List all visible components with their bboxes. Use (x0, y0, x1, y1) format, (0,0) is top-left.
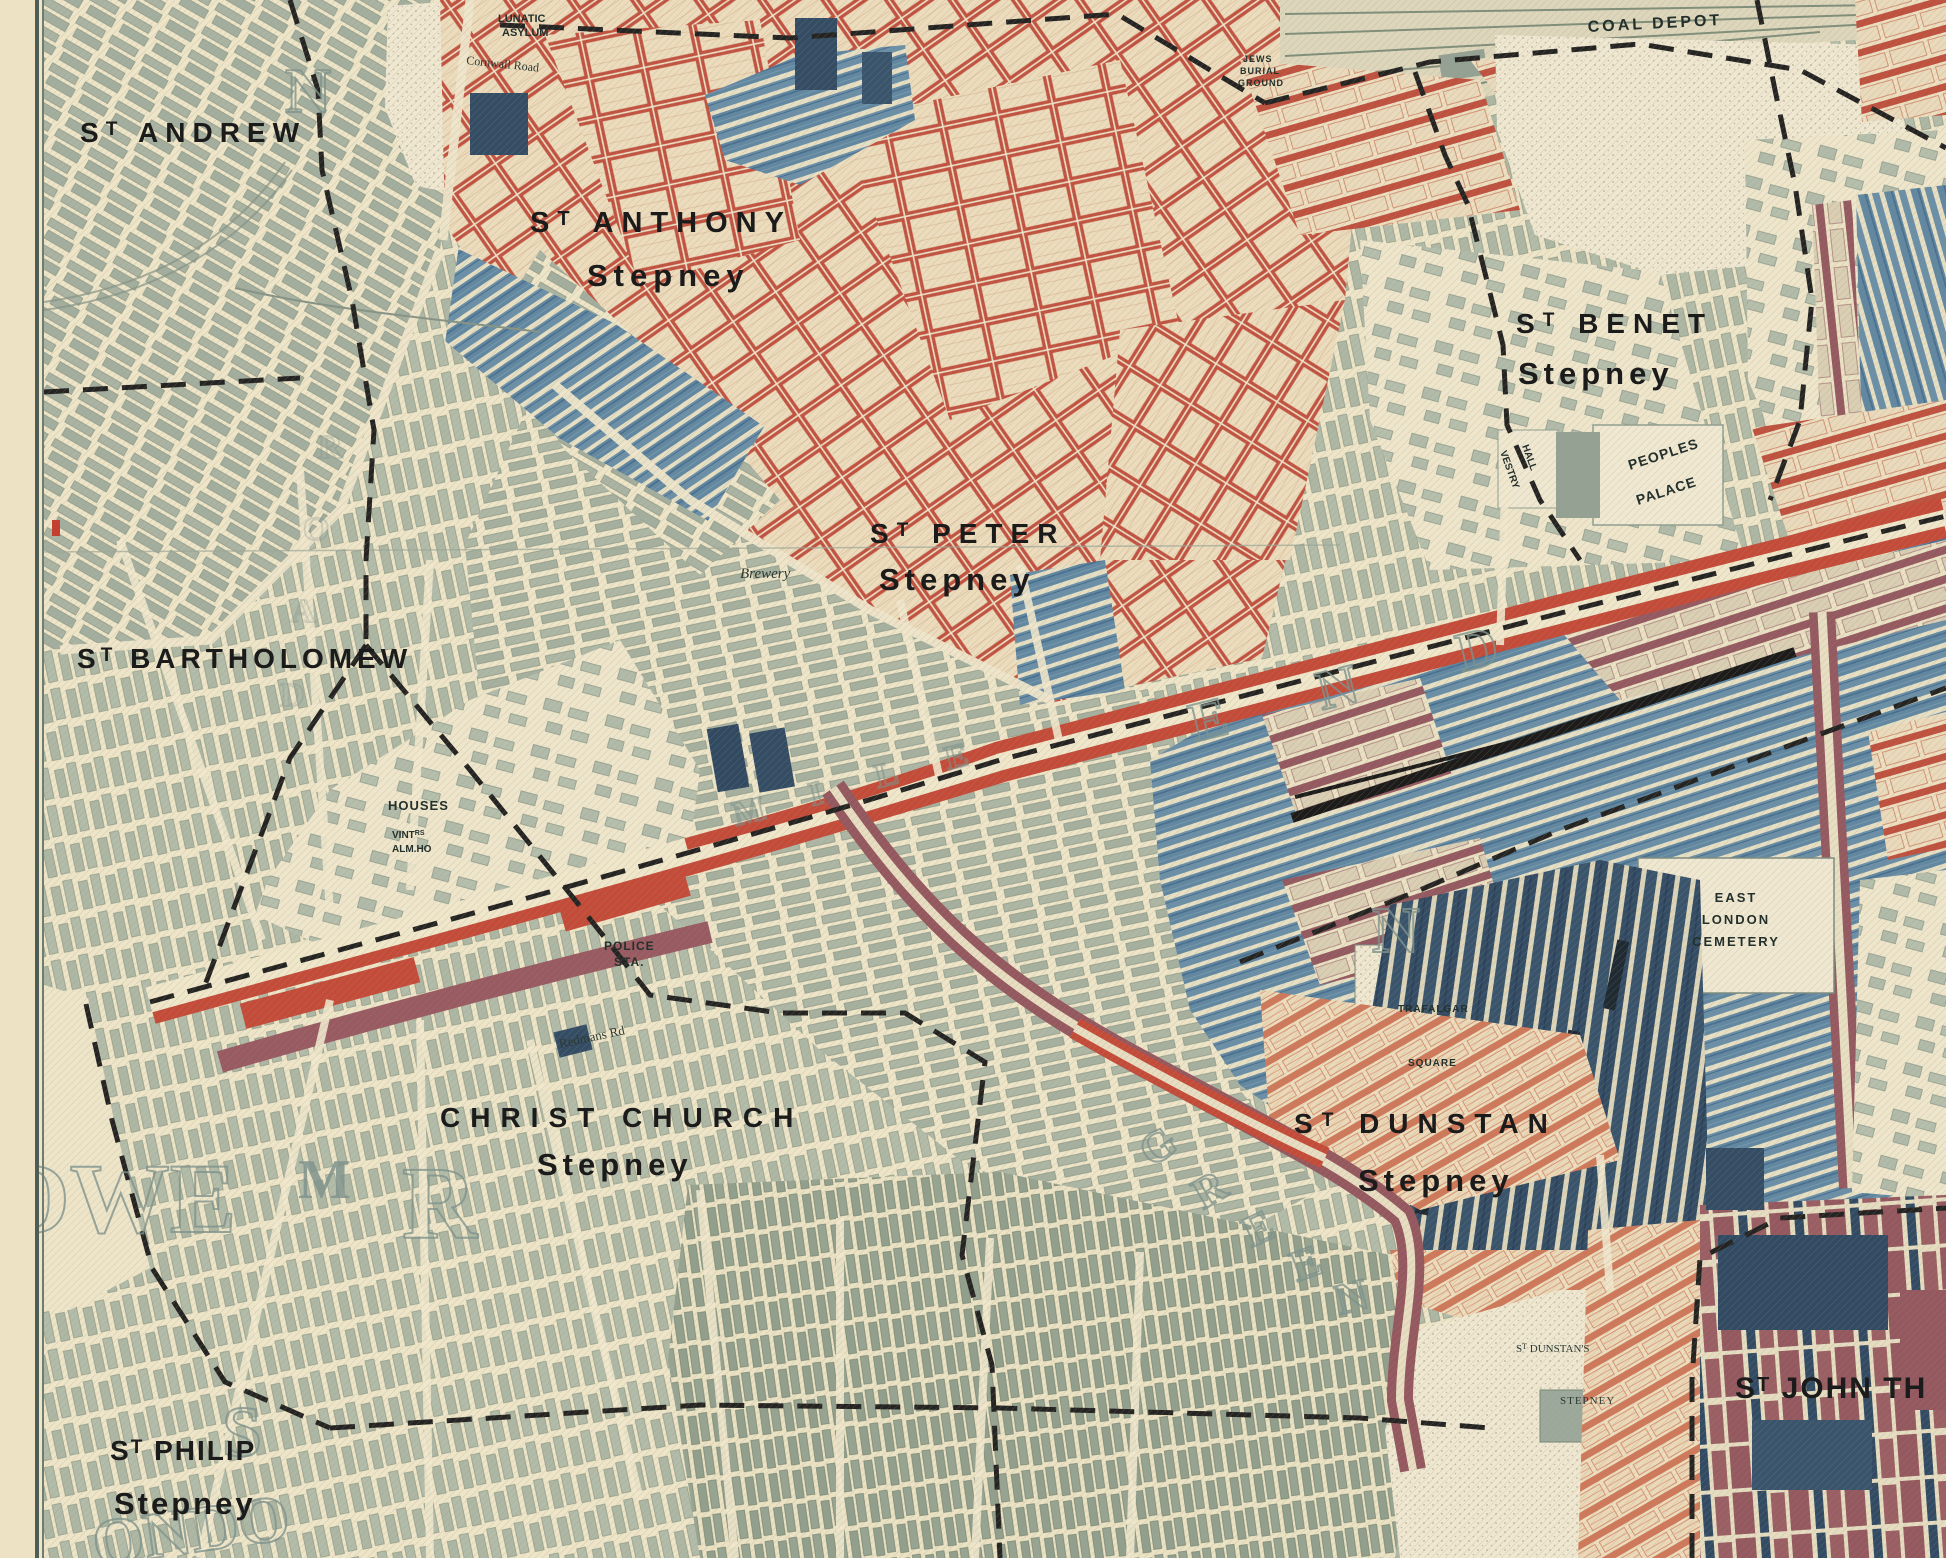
svg-text:ASYLUM: ASYLUM (502, 27, 548, 39)
svg-text:D: D (280, 677, 305, 714)
svg-text:TRAFALGAR: TRAFALGAR (1398, 1004, 1469, 1015)
svg-text:ST BARTHOLOMEW: ST BARTHOLOMEW (77, 643, 412, 674)
svg-text:N: N (1372, 894, 1420, 967)
svg-text:O: O (303, 511, 329, 548)
svg-text:LONDON: LONDON (1702, 912, 1770, 927)
svg-text:JEWS: JEWS (1243, 54, 1273, 64)
svg-text:GROUND: GROUND (1238, 78, 1284, 88)
svg-text:CHRIST CHURCH: CHRIST CHURCH (440, 1102, 803, 1133)
svg-text:R: R (402, 1146, 479, 1261)
svg-text:Stepney: Stepney (114, 1486, 256, 1521)
svg-text:Stepney: Stepney (587, 258, 750, 293)
svg-text:ALM.HO: ALM.HO (392, 844, 432, 855)
svg-text:ST DUNSTAN'S: ST DUNSTAN'S (1516, 1342, 1590, 1355)
svg-text:N: N (285, 55, 331, 126)
svg-text:EAST: EAST (1715, 890, 1758, 905)
svg-text:POLICE: POLICE (604, 939, 655, 953)
svg-text:STA.: STA. (614, 955, 644, 969)
svg-text:LUNATIC: LUNATIC (498, 13, 546, 25)
svg-text:M: M (298, 1149, 351, 1211)
svg-text:BURIAL: BURIAL (1240, 66, 1280, 76)
svg-text:Stepney: Stepney (879, 562, 1035, 597)
svg-text:CEMETERY: CEMETERY (1692, 934, 1780, 949)
svg-text:Brewery: Brewery (740, 566, 791, 582)
svg-text:R: R (318, 429, 343, 466)
svg-text:Stepney: Stepney (1358, 1163, 1514, 1198)
svg-text:HOUSES: HOUSES (388, 798, 449, 813)
svg-text:SQUARE: SQUARE (1408, 1058, 1457, 1069)
svg-text:A: A (291, 593, 316, 630)
svg-text:Stepney: Stepney (537, 1147, 693, 1182)
svg-text:Stepney: Stepney (1518, 356, 1674, 391)
svg-text:STEPNEY: STEPNEY (1560, 1395, 1615, 1407)
